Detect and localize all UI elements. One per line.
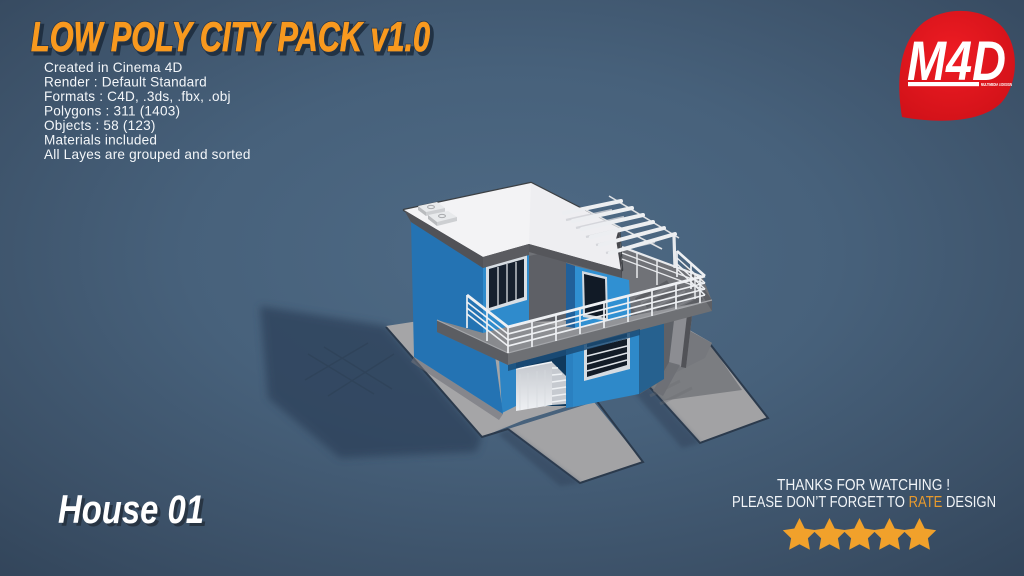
svg-text:MULTIMEDIA 4 DESIGN: MULTIMEDIA 4 DESIGN bbox=[981, 82, 1012, 87]
svg-text:LOW POLY CITY PACK v1.0: LOW POLY CITY PACK v1.0 bbox=[31, 13, 430, 60]
svg-text:Polygons : 311 (1403): Polygons : 311 (1403) bbox=[44, 104, 180, 119]
svg-text:Created in Cinema 4D: Created in Cinema 4D bbox=[44, 60, 183, 75]
svg-text:Materials included: Materials included bbox=[44, 133, 157, 148]
svg-text:Formats : C4D, .3ds, .fbx, .ob: Formats : C4D, .3ds, .fbx, .obj bbox=[44, 89, 231, 104]
svg-text:THANKS FOR WATCHING !: THANKS FOR WATCHING ! bbox=[777, 477, 950, 494]
svg-text:House 01: House 01 bbox=[58, 488, 204, 532]
svg-text:PLEASE DON’T FORGET TO RATE DE: PLEASE DON’T FORGET TO RATE DESIGN bbox=[732, 494, 996, 511]
svg-text:Render : Default Standard: Render : Default Standard bbox=[44, 75, 207, 90]
svg-text:All Layes are grouped and sort: All Layes are grouped and sorted bbox=[44, 147, 251, 162]
svg-text:Objects : 58 (123): Objects : 58 (123) bbox=[44, 118, 156, 133]
